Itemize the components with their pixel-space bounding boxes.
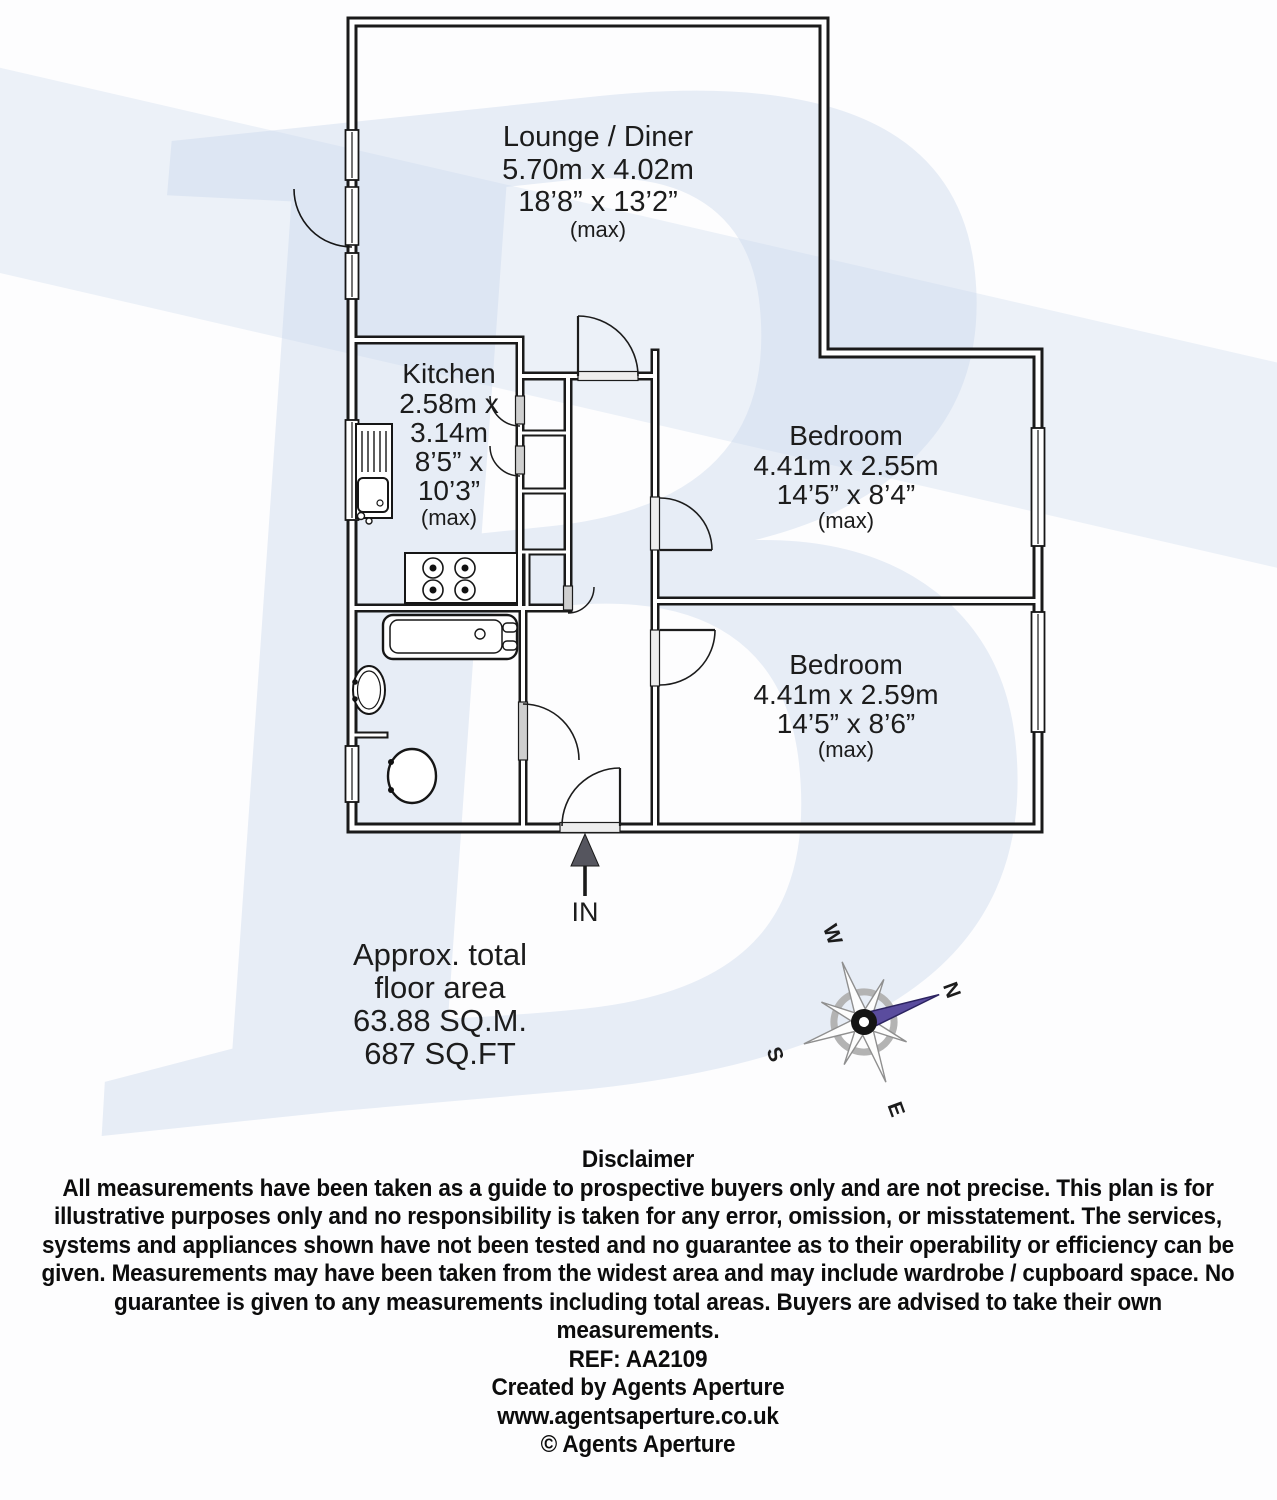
- lounge-metric: 5.70m x 4.02m: [502, 154, 694, 186]
- bedroom2-max: (max): [818, 737, 874, 762]
- floorplan-drawing: Lounge / Diner 5.70m x 4.02m 18’8” x 13’…: [0, 0, 1277, 1140]
- compass-w: W: [818, 921, 846, 948]
- kitchen-metric-1: 2.58m x: [399, 388, 499, 419]
- entrance-label: IN: [572, 897, 599, 927]
- disclaimer-website: www.agentsaperture.co.uk: [35, 1403, 1240, 1432]
- kitchen-name: Kitchen: [402, 358, 495, 389]
- lounge-imperial: 18’8” x 13’2”: [518, 186, 678, 218]
- bathroom-window: [346, 746, 359, 802]
- compass-n: N: [938, 979, 965, 1001]
- bedroom1-name: Bedroom: [789, 420, 903, 451]
- disclaimer-copyright: © Agents Aperture: [35, 1431, 1240, 1460]
- front-door: [560, 768, 620, 833]
- compass-e: E: [883, 1099, 909, 1120]
- compass-icon: N E S W: [729, 890, 997, 1140]
- disclaimer-block: Disclaimer All measurements have been ta…: [35, 1146, 1240, 1460]
- bedroom1-door: [651, 497, 713, 550]
- total-area-label: Approx. total floor area 63.88 SQ.M. 687…: [353, 937, 527, 1071]
- bedroom1-window: [1032, 428, 1045, 546]
- floorplan-page: B: [0, 0, 1277, 1500]
- room-bedroom2-label: Bedroom 4.41m x 2.59m 14’5” x 8’6” (max): [753, 649, 938, 762]
- area-line1: Approx. total: [353, 937, 527, 972]
- room-bedroom1-label: Bedroom 4.41m x 2.55m 14’5” x 8’4” (max): [753, 420, 938, 533]
- kitchen-max: (max): [421, 505, 477, 530]
- bedroom2-name: Bedroom: [789, 649, 903, 680]
- disclaimer-body: All measurements have been taken as a gu…: [35, 1175, 1240, 1346]
- entrance-arrow-icon: [571, 834, 599, 896]
- room-kitchen-label: Kitchen 2.58m x 3.14m 8’5” x 10’3” (max): [399, 358, 499, 530]
- room-lounge-label: Lounge / Diner 5.70m x 4.02m 18’8” x 13’…: [502, 121, 694, 242]
- lounge-window-2: [346, 253, 359, 299]
- lounge-max: (max): [570, 217, 626, 242]
- bedroom1-imperial: 14’5” x 8’4”: [777, 479, 916, 510]
- disclaimer-created-by: Created by Agents Aperture: [35, 1374, 1240, 1403]
- area-line2: floor area: [375, 970, 507, 1005]
- bedroom1-metric: 4.41m x 2.55m: [753, 450, 938, 481]
- bedroom2-window: [1032, 612, 1045, 732]
- lounge-name: Lounge / Diner: [503, 121, 694, 153]
- bath-icon: [383, 615, 517, 659]
- lounge-patio-door: [294, 187, 359, 247]
- area-line4: 687 SQ.FT: [364, 1036, 516, 1071]
- compass-s: S: [762, 1044, 788, 1065]
- bedroom2-door: [651, 630, 716, 686]
- kitchen-cupboard-door-2: [490, 446, 525, 476]
- basin-icon: [352, 666, 385, 714]
- sink-counter-icon: [356, 424, 392, 524]
- kitchen-imperial-2: 10’3”: [418, 475, 480, 506]
- disclaimer-title: Disclaimer: [35, 1146, 1240, 1175]
- lounge-window-1: [346, 130, 359, 180]
- bedroom2-imperial: 14’5” x 8’6”: [777, 708, 916, 739]
- disclaimer-ref: REF: AA2109: [35, 1346, 1240, 1375]
- kitchen-imperial-1: 8’5” x: [415, 446, 483, 477]
- bathroom-fixtures: [352, 615, 517, 803]
- area-line3: 63.88 SQ.M.: [353, 1003, 527, 1038]
- hall-cupboard-door: [564, 586, 595, 613]
- toilet-icon: [388, 749, 436, 803]
- bedroom2-metric: 4.41m x 2.59m: [753, 679, 938, 710]
- bedroom1-max: (max): [818, 508, 874, 533]
- lounge-door: [578, 316, 638, 381]
- kitchen-metric-2: 3.14m: [410, 417, 488, 448]
- hob-icon: [405, 553, 517, 603]
- bathroom-door: [519, 702, 580, 760]
